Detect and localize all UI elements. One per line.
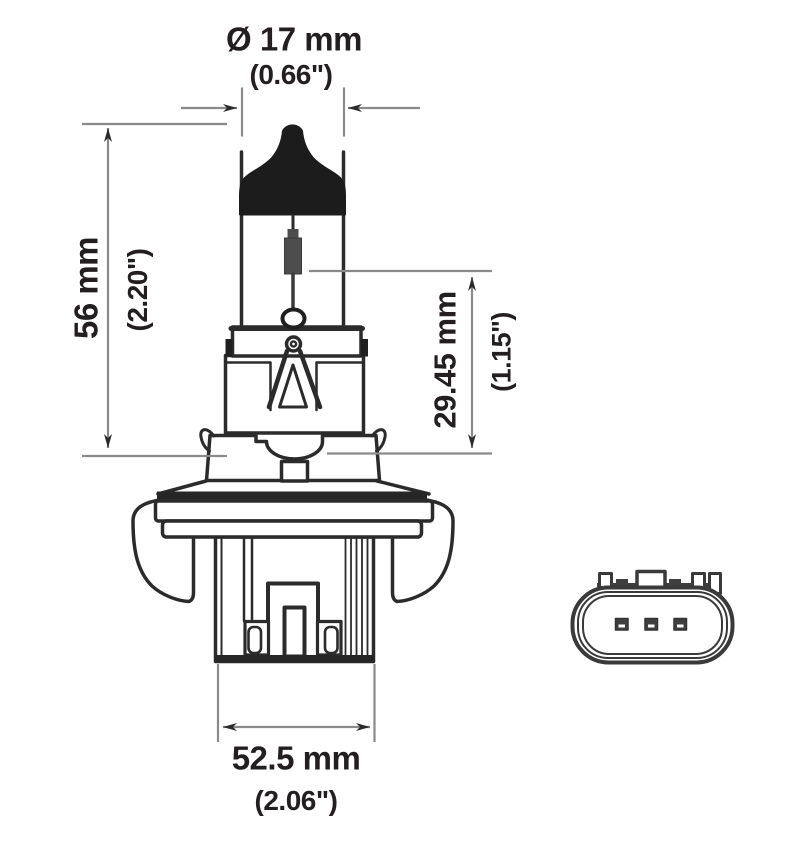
keyed-section: [201, 430, 385, 481]
black-tip: [240, 125, 345, 214]
seal-ring: [283, 310, 305, 328]
length-label-imperial: (2.20"): [124, 249, 152, 332]
connector-pins: [616, 619, 687, 631]
base-length-label-metric: 29.45 mm: [430, 291, 461, 428]
base-body: [215, 537, 374, 663]
base-length-label-imperial: (1.15"): [489, 312, 516, 392]
bulb-technical-drawing: Ø 17 mm (0.66") 56 mm (2.20") 29.45 mm (…: [0, 0, 800, 843]
filament: [285, 216, 302, 310]
diameter-label-imperial: (0.66"): [250, 61, 333, 89]
base-bottom-edge: [215, 655, 374, 663]
length-label-metric: 56 mm: [70, 237, 103, 339]
width-label-imperial: (2.06"): [255, 787, 338, 815]
bulb-side-view: [133, 125, 453, 662]
width-label-metric: 52.5 mm: [232, 742, 361, 775]
drawing-canvas: [0, 0, 800, 843]
connector-end-view: [573, 572, 733, 663]
dimension-width-lines: [218, 664, 375, 742]
key-tab: [282, 462, 308, 482]
terminal-slot: [285, 608, 305, 657]
diameter-label-metric: Ø 17 mm: [226, 23, 362, 56]
flange: [156, 481, 433, 537]
